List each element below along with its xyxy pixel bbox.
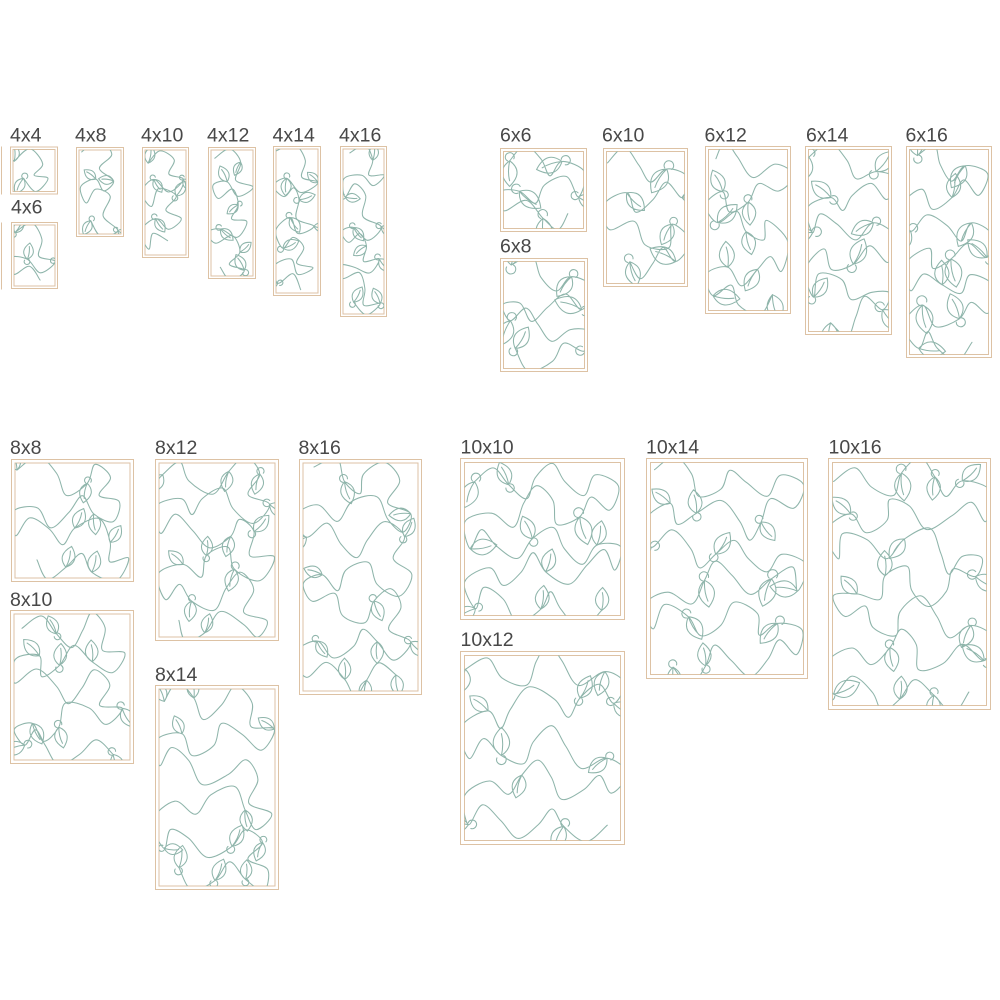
- svg-text:4x14: 4x14: [273, 125, 315, 147]
- svg-text:8x8: 8x8: [10, 437, 41, 459]
- svg-text:10x10: 10x10: [461, 437, 514, 459]
- svg-text:4x4: 4x4: [10, 125, 42, 147]
- svg-text:8x14: 8x14: [155, 664, 197, 686]
- svg-text:4x10: 4x10: [141, 125, 183, 147]
- svg-text:6x12: 6x12: [705, 125, 747, 147]
- svg-text:8x10: 8x10: [10, 589, 52, 611]
- svg-text:10x12: 10x12: [461, 629, 514, 651]
- svg-text:4x6: 4x6: [11, 197, 42, 219]
- svg-text:4x16: 4x16: [339, 125, 381, 147]
- svg-text:6x6: 6x6: [500, 125, 531, 147]
- svg-text:10x16: 10x16: [829, 437, 882, 459]
- svg-text:6x14: 6x14: [806, 125, 848, 147]
- svg-text:4x12: 4x12: [207, 125, 249, 147]
- svg-text:6x16: 6x16: [906, 125, 948, 147]
- svg-text:6x10: 6x10: [602, 125, 644, 147]
- svg-text:8x12: 8x12: [155, 437, 197, 459]
- svg-text:6x8: 6x8: [500, 236, 531, 258]
- svg-text:8x16: 8x16: [299, 437, 341, 459]
- svg-text:10x14: 10x14: [646, 437, 699, 459]
- svg-text:4x8: 4x8: [75, 125, 106, 147]
